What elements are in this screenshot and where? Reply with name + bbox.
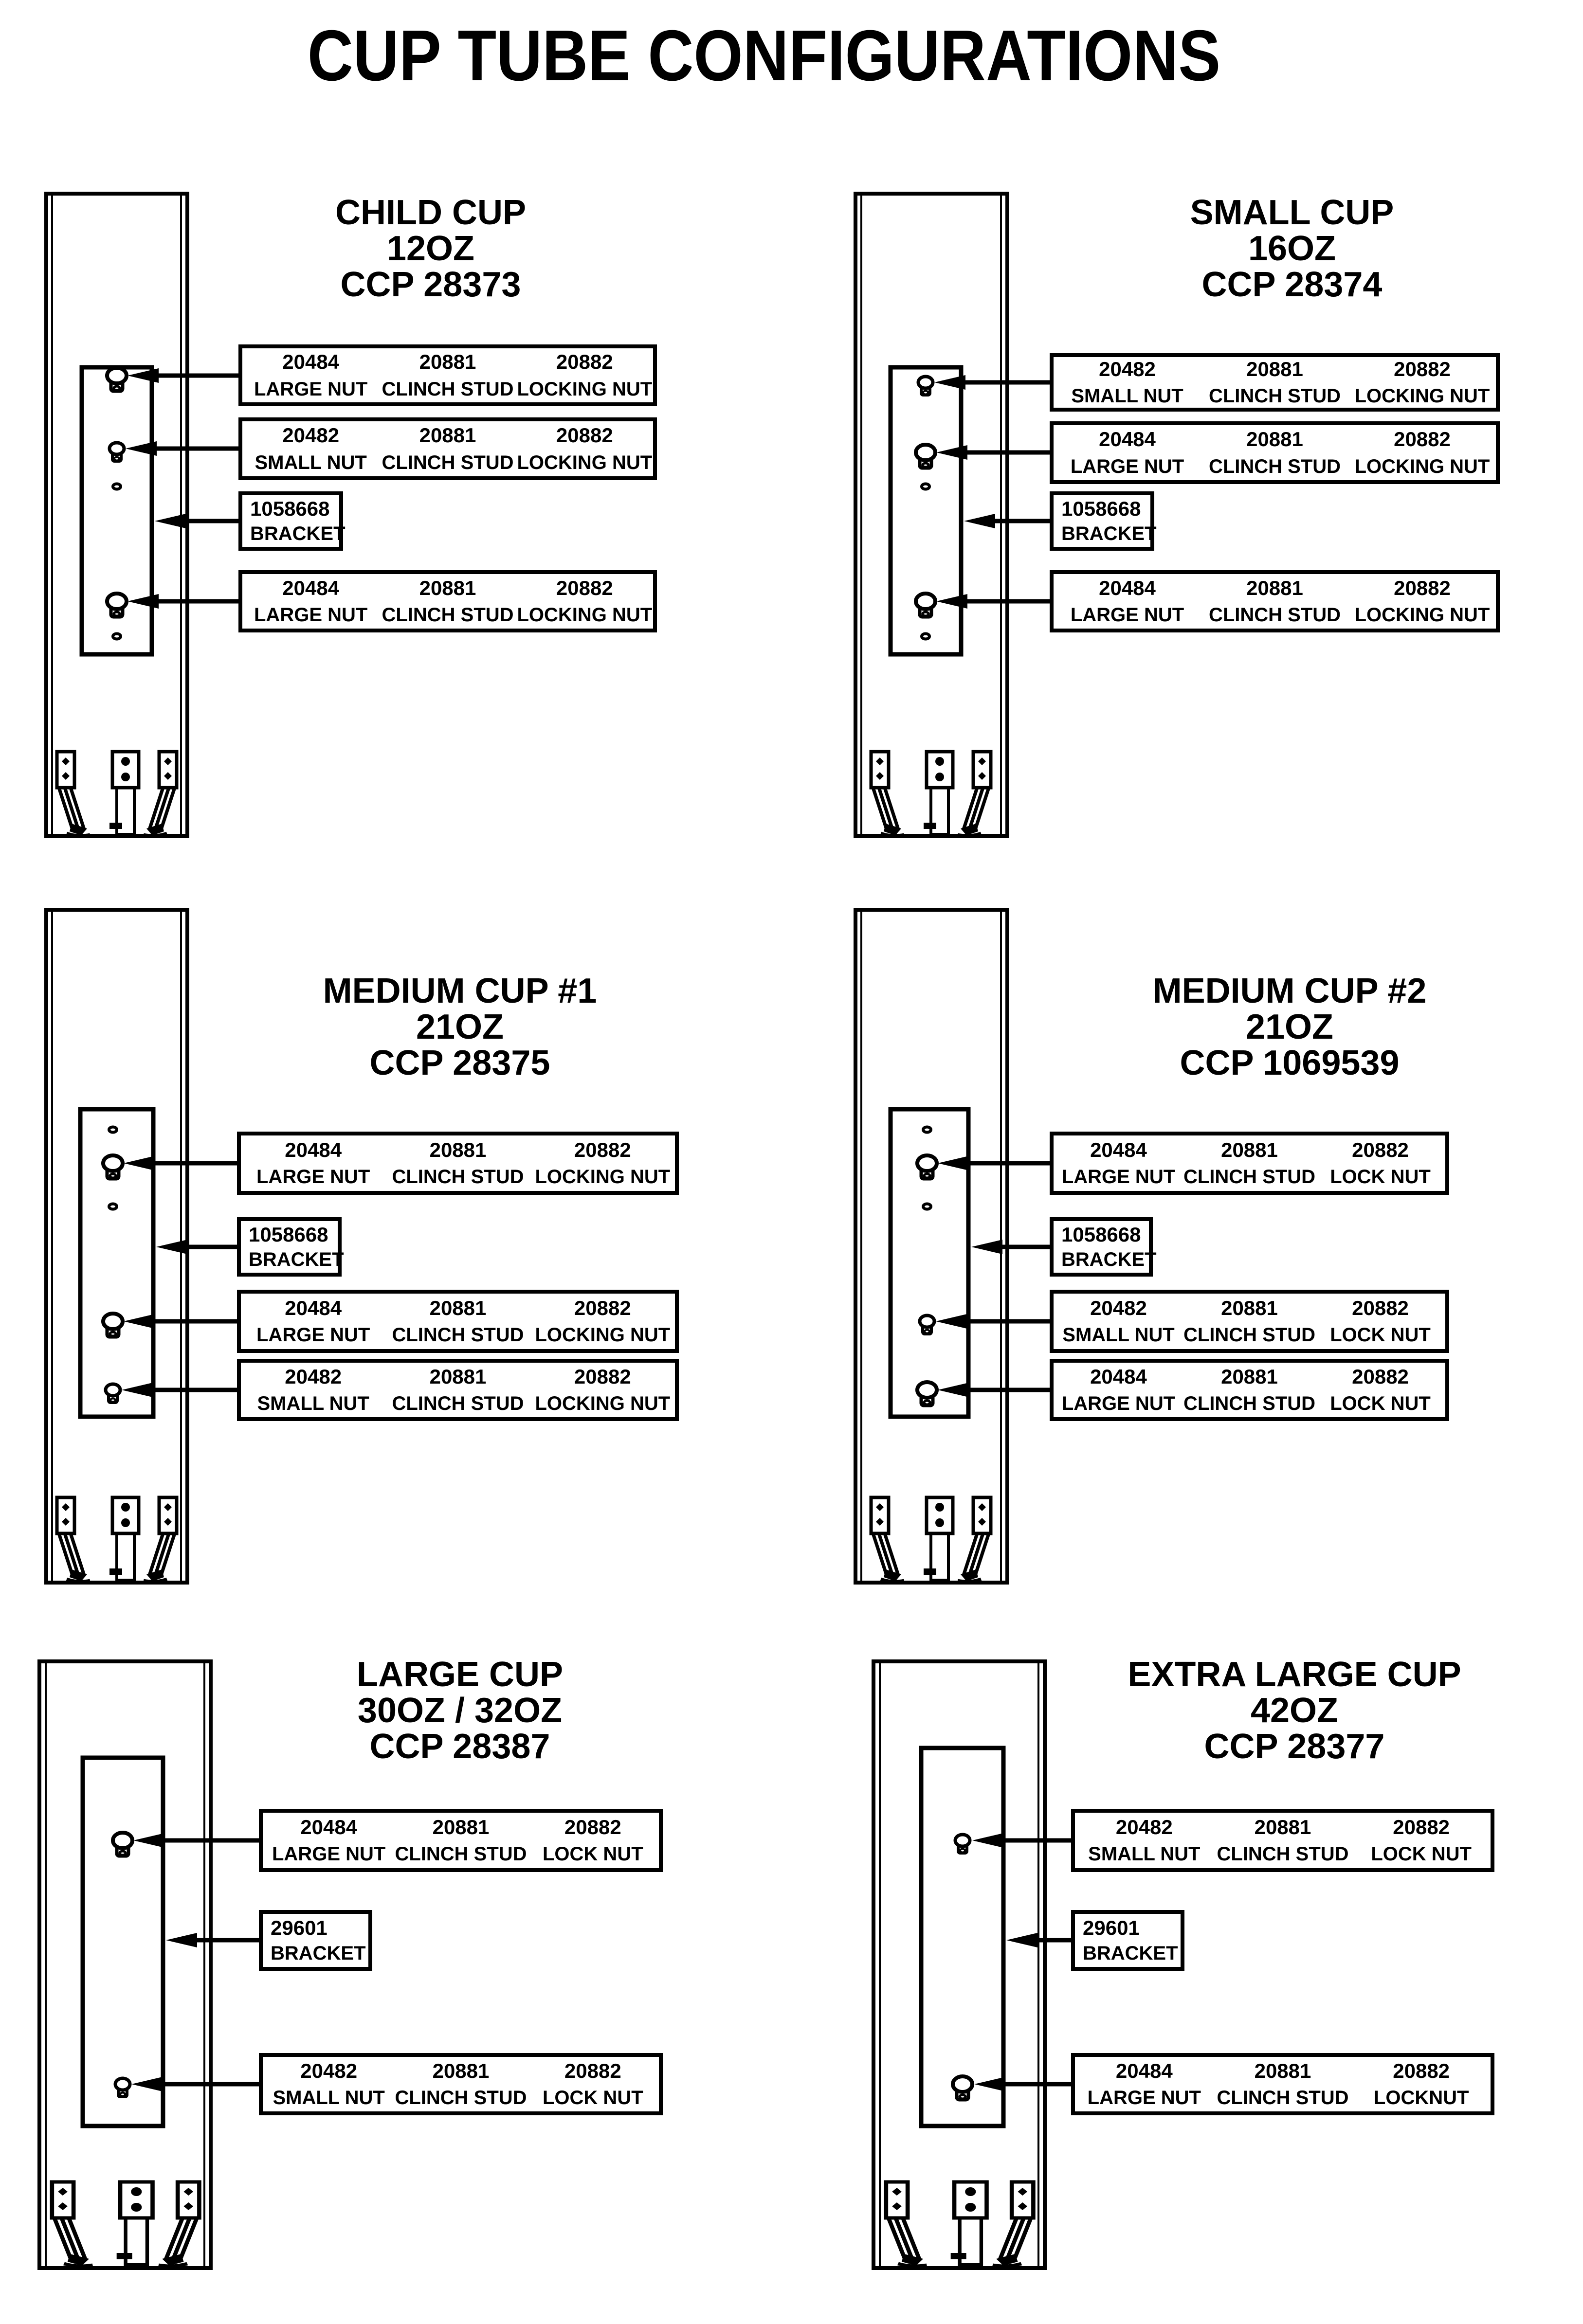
large-cup-tube <box>39 1661 269 2268</box>
part-cell: 20881CLINCH STUD <box>1183 1139 1315 1187</box>
part-cell: 20482SMALL NUT <box>242 425 379 472</box>
part-number: 20881 <box>385 1297 530 1319</box>
part-number: 20881 <box>379 351 516 373</box>
part-label: LARGE NUT <box>263 1844 395 1864</box>
part-number: 1058668 <box>250 498 339 520</box>
part-label: LOCK NUT <box>1315 1325 1445 1345</box>
part-label: CLINCH STUD <box>1183 1167 1315 1187</box>
part-cell: 20484LARGE NUT <box>241 1297 385 1345</box>
part-number: 1058668 <box>1061 498 1150 520</box>
parts-box: 20484LARGE NUT 20881CLINCH STUD 20882LOC… <box>238 344 657 406</box>
part-label: LOCKING NUT <box>516 379 653 399</box>
part-cell: 20882LOCKING NUT <box>1348 359 1496 406</box>
parts-box: 20484LARGE NUT 20881CLINCH STUD 20882LOC… <box>238 570 657 632</box>
part-number: 20882 <box>516 577 653 599</box>
part-number: 20882 <box>1315 1139 1445 1161</box>
panel-header-medium-cup-1: MEDIUM CUP #1 21OZ CCP 28375 <box>290 973 630 1081</box>
part-cell: 20484LARGE NUT <box>1054 429 1201 476</box>
parts-box: 20484LARGE NUT 20881CLINCH STUD 20882LOC… <box>1050 1132 1449 1195</box>
panel-size: 21OZ <box>290 1009 630 1045</box>
part-number: 20881 <box>385 1366 530 1387</box>
part-number: 20881 <box>379 425 516 446</box>
part-label: CLINCH STUD <box>1201 386 1348 406</box>
part-label: LARGE NUT <box>242 379 379 399</box>
medium-cup-2-tube <box>855 910 1059 1583</box>
part-cell: 20484LARGE NUT <box>1054 1366 1183 1414</box>
part-number: 1058668 <box>1061 1224 1149 1245</box>
bracket-box: 1058668 BRACKET <box>1050 1217 1153 1277</box>
part-label: BRACKET <box>271 1943 368 1964</box>
part-number: 20882 <box>1352 2060 1491 2082</box>
part-cell: 20484LARGE NUT <box>1075 2060 1214 2108</box>
part-number: 20882 <box>1348 359 1496 380</box>
part-number: 20484 <box>1075 2060 1214 2082</box>
part-cell: 20882LOCK NUT <box>1315 1366 1445 1414</box>
part-cell: 20881CLINCH STUD <box>1201 359 1348 406</box>
part-number: 20882 <box>1348 429 1496 450</box>
part-number: 20881 <box>379 577 516 599</box>
part-number: 20484 <box>242 577 379 599</box>
part-label: CLINCH STUD <box>385 1325 530 1345</box>
panel-name: EXTRA LARGE CUP <box>1075 1657 1513 1693</box>
parts-box: 20482SMALL NUT 20881CLINCH STUD 20882LOC… <box>259 2053 663 2115</box>
part-label: LOCKING NUT <box>530 1393 675 1414</box>
panel-size: 30OZ / 32OZ <box>290 1693 630 1729</box>
part-cell: 20484LARGE NUT <box>1054 577 1201 625</box>
part-label: CLINCH STUD <box>385 1393 530 1414</box>
part-label: LOCKING NUT <box>530 1325 675 1345</box>
part-label: BRACKET <box>250 523 339 544</box>
part-cell: 20882LOCKING NUT <box>1348 429 1496 476</box>
panel-ccp: CCP 28375 <box>290 1045 630 1081</box>
part-label: CLINCH STUD <box>385 1167 530 1187</box>
panel-size: 42OZ <box>1075 1693 1513 1729</box>
extra-large-cup-tube <box>873 1661 1081 2268</box>
part-cell: 20484LARGE NUT <box>241 1139 385 1187</box>
part-number: 20881 <box>1214 1817 1352 1838</box>
part-number: 20881 <box>1201 359 1348 380</box>
part-label: LOCKING NUT <box>516 452 653 473</box>
panel-name: MEDIUM CUP #1 <box>290 973 630 1009</box>
part-number: 20484 <box>241 1297 385 1319</box>
part-number: 20881 <box>1183 1297 1315 1319</box>
part-label: LOCKING NUT <box>516 605 653 625</box>
large-cup-bracket-plate <box>83 1758 163 2126</box>
panel-ccp: CCP 28377 <box>1075 1729 1513 1765</box>
part-label: LOCK NUT <box>1315 1393 1445 1414</box>
part-number: 20881 <box>1201 429 1348 450</box>
part-label: SMALL NUT <box>1054 1325 1183 1345</box>
small-cup-tube <box>855 194 1059 836</box>
part-label: SMALL NUT <box>242 452 379 473</box>
part-label: CLINCH STUD <box>379 605 516 625</box>
part-cell: 20881CLINCH STUD <box>385 1139 530 1187</box>
part-label: CLINCH STUD <box>1183 1393 1315 1414</box>
part-number: 20882 <box>1315 1297 1445 1319</box>
parts-box: 20484LARGE NUT 20881CLINCH STUD 20882LOC… <box>237 1290 679 1353</box>
part-cell: 20882LOCKING NUT <box>530 1297 675 1345</box>
part-number: 20882 <box>530 1366 675 1387</box>
part-number: 20482 <box>1075 1817 1214 1838</box>
panel-size: 16OZ <box>1146 231 1438 267</box>
part-label: LOCKING NUT <box>1348 386 1496 406</box>
part-number: 20482 <box>263 2060 395 2082</box>
part-label: LOCK NUT <box>527 2088 659 2108</box>
panel-name: MEDIUM CUP #2 <box>1119 973 1460 1009</box>
parts-box: 20484LARGE NUT 20881CLINCH STUD 20882LOC… <box>259 1809 663 1872</box>
parts-box: 20482SMALL NUT 20881CLINCH STUD 20882LOC… <box>1071 1809 1494 1872</box>
part-label: LOCK NUT <box>527 1844 659 1864</box>
part-number: 29601 <box>271 1917 368 1939</box>
part-label: SMALL NUT <box>1054 386 1201 406</box>
panel-header-large-cup: LARGE CUP 30OZ / 32OZ CCP 28387 <box>290 1657 630 1765</box>
panel-name: LARGE CUP <box>290 1657 630 1693</box>
part-number: 20881 <box>1183 1366 1315 1387</box>
part-label: LOCKING NUT <box>1348 456 1496 477</box>
part-label: CLINCH STUD <box>1201 605 1348 625</box>
part-label: LOCKNUT <box>1352 2088 1491 2108</box>
part-cell: 20484LARGE NUT <box>242 351 379 399</box>
part-label: LARGE NUT <box>1054 605 1201 625</box>
part-cell: 20881CLINCH STUD <box>379 351 516 399</box>
part-label: SMALL NUT <box>263 2088 395 2108</box>
part-number: 20484 <box>1054 577 1201 599</box>
part-cell: 20484LARGE NUT <box>1054 1139 1183 1187</box>
part-label: CLINCH STUD <box>379 379 516 399</box>
child-cup-tube <box>46 194 248 836</box>
part-label: CLINCH STUD <box>395 1844 527 1864</box>
part-label: CLINCH STUD <box>395 2088 527 2108</box>
part-number: 20482 <box>242 425 379 446</box>
part-cell: 20882LOCK NUT <box>527 2060 659 2108</box>
part-label: LOCK NUT <box>1315 1167 1445 1187</box>
part-cell: 20881CLINCH STUD <box>1201 577 1348 625</box>
part-cell: 20881CLINCH STUD <box>1214 2060 1352 2108</box>
parts-box: 20484LARGE NUT 20881CLINCH STUD 20882LOC… <box>1071 2053 1494 2115</box>
part-label: CLINCH STUD <box>1214 1844 1352 1864</box>
part-cell: 20881CLINCH STUD <box>379 577 516 625</box>
part-cell: 20881CLINCH STUD <box>385 1297 530 1345</box>
bracket-box: 1058668 BRACKET <box>1050 491 1154 551</box>
part-label: LARGE NUT <box>1075 2088 1214 2108</box>
page-title: CUP TUBE CONFIGURATIONS <box>272 15 1256 97</box>
part-number: 20882 <box>527 1817 659 1838</box>
part-label: LOCKING NUT <box>530 1167 675 1187</box>
part-number: 20482 <box>1054 1297 1183 1319</box>
part-cell: 20882LOCKING NUT <box>516 351 653 399</box>
part-cell: 20882LOCKING NUT <box>516 577 653 625</box>
part-cell: 20482SMALL NUT <box>241 1366 385 1414</box>
part-label: BRACKET <box>1061 523 1150 544</box>
part-label: LARGE NUT <box>241 1325 385 1345</box>
part-label: CLINCH STUD <box>1214 2088 1352 2108</box>
part-cell: 20882LOCK NUT <box>1315 1297 1445 1345</box>
parts-box: 20484LARGE NUT 20881CLINCH STUD 20882LOC… <box>1050 421 1500 484</box>
part-label: CLINCH STUD <box>379 452 516 473</box>
part-number: 20882 <box>516 425 653 446</box>
extra-large-cup-bracket-plate <box>921 1748 1003 2126</box>
medium-cup-1-tube <box>46 910 247 1583</box>
part-number: 20484 <box>1054 1366 1183 1387</box>
part-number: 20881 <box>395 2060 527 2082</box>
part-number: 20484 <box>1054 429 1201 450</box>
part-number: 1058668 <box>249 1224 338 1245</box>
part-number: 20881 <box>1201 577 1348 599</box>
bracket-box: 29601 BRACKET <box>259 1910 372 1971</box>
parts-box: 20482SMALL NUT 20881CLINCH STUD 20882LOC… <box>237 1359 679 1421</box>
part-label: BRACKET <box>1061 1249 1149 1270</box>
parts-box: 20484LARGE NUT 20881CLINCH STUD 20882LOC… <box>237 1132 679 1195</box>
panel-header-small-cup: SMALL CUP 16OZ CCP 28374 <box>1146 195 1438 303</box>
panel-ccp: CCP 1069539 <box>1119 1045 1460 1081</box>
part-cell: 20881CLINCH STUD <box>395 2060 527 2108</box>
part-cell: 20881CLINCH STUD <box>1183 1366 1315 1414</box>
diagram-page: CUP TUBE CONFIGURATIONS CHILD CUP 12OZ C… <box>0 0 1583 2324</box>
parts-box: 20484LARGE NUT 20881CLINCH STUD 20882LOC… <box>1050 1359 1449 1421</box>
part-number: 20881 <box>1183 1139 1315 1161</box>
part-number: 20482 <box>241 1366 385 1387</box>
part-label: CLINCH STUD <box>1183 1325 1315 1345</box>
part-label: LARGE NUT <box>1054 1167 1183 1187</box>
part-number: 20882 <box>1348 577 1496 599</box>
parts-box: 20482SMALL NUT 20881CLINCH STUD 20882LOC… <box>1050 353 1500 412</box>
part-cell: 20482SMALL NUT <box>263 2060 395 2108</box>
part-label: SMALL NUT <box>241 1393 385 1414</box>
part-label: LOCKING NUT <box>1348 605 1496 625</box>
panel-ccp: CCP 28387 <box>290 1729 630 1765</box>
part-cell: 20482SMALL NUT <box>1054 1297 1183 1345</box>
part-cell: 20882LOCKING NUT <box>516 425 653 472</box>
panel-size: 12OZ <box>285 231 577 267</box>
part-cell: 20882LOCK NUT <box>527 1817 659 1864</box>
part-number: 20882 <box>527 2060 659 2082</box>
parts-box: 20482SMALL NUT 20881CLINCH STUD 20882LOC… <box>1050 1290 1449 1353</box>
part-number: 20881 <box>395 1817 527 1838</box>
part-number: 20882 <box>1352 1817 1491 1838</box>
part-cell: 20881CLINCH STUD <box>1183 1297 1315 1345</box>
bracket-box: 1058668 BRACKET <box>238 491 343 551</box>
part-label: LARGE NUT <box>242 605 379 625</box>
part-label: CLINCH STUD <box>1201 456 1348 477</box>
part-cell: 20882LOCKNUT <box>1352 2060 1491 2108</box>
panel-name: CHILD CUP <box>285 195 577 231</box>
part-number: 20881 <box>1214 2060 1352 2082</box>
part-number: 20881 <box>385 1139 530 1161</box>
part-cell: 20482SMALL NUT <box>1054 359 1201 406</box>
part-cell: 20882LOCK NUT <box>1352 1817 1491 1864</box>
panel-header-child-cup: CHILD CUP 12OZ CCP 28373 <box>285 195 577 303</box>
part-number: 20484 <box>241 1139 385 1161</box>
part-number: 20484 <box>1054 1139 1183 1161</box>
panel-header-extra-large-cup: EXTRA LARGE CUP 42OZ CCP 28377 <box>1075 1657 1513 1765</box>
part-label: LARGE NUT <box>241 1167 385 1187</box>
panel-header-medium-cup-2: MEDIUM CUP #2 21OZ CCP 1069539 <box>1119 973 1460 1081</box>
part-cell: 20882LOCK NUT <box>1315 1139 1445 1187</box>
part-cell: 20881CLINCH STUD <box>395 1817 527 1864</box>
part-cell: 20881CLINCH STUD <box>385 1366 530 1414</box>
part-number: 20482 <box>1054 359 1201 380</box>
panel-ccp: CCP 28373 <box>285 267 577 303</box>
part-cell: 20484LARGE NUT <box>263 1817 395 1864</box>
panel-name: SMALL CUP <box>1146 195 1438 231</box>
parts-box: 20484LARGE NUT 20881CLINCH STUD 20882LOC… <box>1050 570 1500 632</box>
bracket-box: 1058668 BRACKET <box>237 1217 342 1277</box>
part-cell: 20882LOCKING NUT <box>530 1139 675 1187</box>
part-label: BRACKET <box>1083 1943 1181 1964</box>
part-label: SMALL NUT <box>1075 1844 1214 1864</box>
part-label: LOCK NUT <box>1352 1844 1491 1864</box>
panel-ccp: CCP 28374 <box>1146 267 1438 303</box>
panel-size: 21OZ <box>1119 1009 1460 1045</box>
part-number: 20882 <box>516 351 653 373</box>
part-cell: 20881CLINCH STUD <box>1214 1817 1352 1864</box>
part-cell: 20484LARGE NUT <box>242 577 379 625</box>
part-cell: 20882LOCKING NUT <box>1348 577 1496 625</box>
part-label: BRACKET <box>249 1249 338 1270</box>
part-number: 20882 <box>1315 1366 1445 1387</box>
parts-box: 20482SMALL NUT 20881CLINCH STUD 20882LOC… <box>238 417 657 480</box>
part-number: 29601 <box>1083 1917 1181 1939</box>
part-number: 20882 <box>530 1139 675 1161</box>
part-cell: 20882LOCKING NUT <box>530 1366 675 1414</box>
part-label: LARGE NUT <box>1054 456 1201 477</box>
part-number: 20484 <box>263 1817 395 1838</box>
part-number: 20882 <box>530 1297 675 1319</box>
part-label: LARGE NUT <box>1054 1393 1183 1414</box>
bracket-box: 29601 BRACKET <box>1071 1910 1184 1971</box>
part-cell: 20881CLINCH STUD <box>1201 429 1348 476</box>
part-cell: 20482SMALL NUT <box>1075 1817 1214 1864</box>
part-number: 20484 <box>242 351 379 373</box>
part-cell: 20881CLINCH STUD <box>379 425 516 472</box>
